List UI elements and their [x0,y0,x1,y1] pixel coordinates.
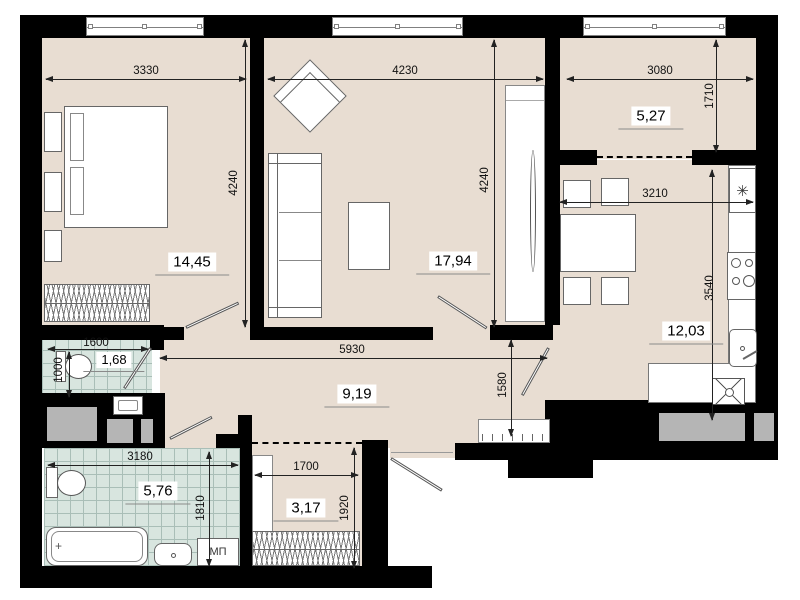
bedside-cabinet [44,230,62,262]
dim-bathroom-height: 1810 [194,486,208,530]
room-label-hallway: 9,19 [337,385,376,404]
sink-faucet [743,350,758,360]
dim-line-bedroom-width [46,79,246,80]
dim-line-bedroom-height [245,40,246,327]
dining-table [560,214,636,272]
wall-exterior-left [20,15,42,588]
exterior-shaft [658,412,746,442]
room-label-bedroom: 14,45 [168,253,216,272]
dim-line-living-height [494,40,495,327]
wall-living-bottom-right [490,325,553,340]
wall-bedroom-living [250,38,264,340]
exterior-shaft [753,412,775,442]
bathtub: + [46,527,148,566]
secondary-sink [712,378,745,405]
entry-threshold-floor [390,443,455,458]
room-label-loggia: 5,27 [631,107,670,126]
wall-living-bottom-left [264,327,433,340]
dim-wc-height: 1000 [52,348,66,392]
wardrobe-side-panel [252,455,273,533]
sofa-backrest [269,154,278,317]
dim-line-hall-height [511,340,512,436]
toilet-bowl [57,470,86,496]
dim-living-width: 4230 [383,64,427,78]
wardrobe-dashed-boundary [252,442,362,444]
dim-hall-height: 1580 [496,363,510,407]
living-room-window [332,17,463,36]
coffee-table [348,202,390,270]
sofa-cushion-seam [279,212,321,213]
fridge-icon: ✳ [729,168,756,213]
room-label-wc: 1,68 [96,352,131,368]
wall-loggia-kitchen-right [692,150,756,165]
stove-burner [732,277,740,285]
pillow [70,113,84,161]
bedroom-wardrobe-hatch [44,284,150,322]
dim-kitchen-height: 3540 [703,266,717,310]
wc-sink-basin [118,400,138,411]
chair [563,180,591,208]
coat-rack [478,419,550,443]
sofa-cushion-seam [279,260,321,261]
wall-wc-right-upper [150,325,164,350]
wall-loggia-kitchen-left [545,150,597,165]
dim-wardrobe-width: 1700 [284,460,328,474]
entrance-door [390,457,442,491]
wall-exterior-pier [508,460,593,478]
wall-living-kitchen [545,38,560,325]
fridge-snowflake: ✳ [736,182,749,200]
wardrobe-shelf-line [506,100,544,101]
sink-drain [725,388,734,397]
dim-bathroom-width: 3180 [118,450,162,464]
wardrobe-hatch [252,531,360,566]
nightstand [44,172,62,212]
chair [563,277,591,305]
bathtub-drain-icon: + [55,539,62,553]
floor-plan: ✳ + МП 3330 4240 [0,0,800,600]
dim-loggia-height: 1710 [703,74,717,118]
coat-hooks [482,434,546,441]
loggia-kitchen-dashed-boundary [597,156,692,158]
room-label-kitchen: 12,03 [662,322,710,341]
dim-bedroom-width: 3330 [124,64,168,78]
room-label-living-room: 17,94 [429,252,477,271]
stove-burner [745,259,753,267]
loggia-floor [560,38,756,159]
living-wardrobe-unit [505,85,545,322]
dim-line-living-width [268,79,543,80]
room-label-bathroom: 5,76 [138,482,177,501]
dim-bedroom-height: 4240 [227,161,241,205]
dim-kitchen-width: 3210 [633,187,677,201]
sofa [268,153,322,318]
duct-shaft [46,406,98,442]
duct-shaft [140,418,154,444]
bedroom-window [86,17,204,36]
wall-wardrobe-right [362,440,388,588]
duct-shaft [106,418,134,444]
washing-machine-label: МП [209,546,226,558]
dim-line-kitchen-width [560,202,753,203]
loggia-window [583,17,726,36]
chair [601,277,629,305]
dim-line-loggia-width [567,79,753,80]
sofa-armrest [269,154,321,164]
wall-hall-bottom [455,443,550,460]
stove-burner [743,275,755,287]
stove [727,252,756,300]
dim-hall-width: 5930 [330,343,374,357]
bathroom-sink [154,543,192,566]
stove-burner [731,258,741,268]
dim-loggia-width: 3080 [638,64,682,78]
dim-wardrobe-height: 1920 [338,486,352,530]
dim-line-bathroom-height [209,452,210,566]
dim-wc-width: 1600 [74,336,118,350]
dim-living-height: 4240 [478,158,492,202]
sink-drain [740,346,745,351]
wc-sink [113,396,143,415]
wall-exterior-right [756,15,778,460]
tv [530,150,536,272]
entry-threshold-line [391,452,453,453]
bed [64,106,168,228]
dim-line-hall-width [160,358,547,359]
wall-bathroom-wardrobe [240,434,252,588]
sink-drain [171,553,176,558]
pillow [70,167,84,215]
dim-line-wardrobe-width [255,475,358,476]
sofa-armrest [269,307,321,317]
nightstand [44,112,62,152]
dim-line-wardrobe-height [354,448,355,568]
washing-machine: МП [197,538,239,566]
kitchen-sink [729,329,757,367]
bathtub-inner [51,531,143,562]
dim-line-wc-height [69,352,70,397]
room-label-wardrobe: 3,17 [286,499,325,518]
